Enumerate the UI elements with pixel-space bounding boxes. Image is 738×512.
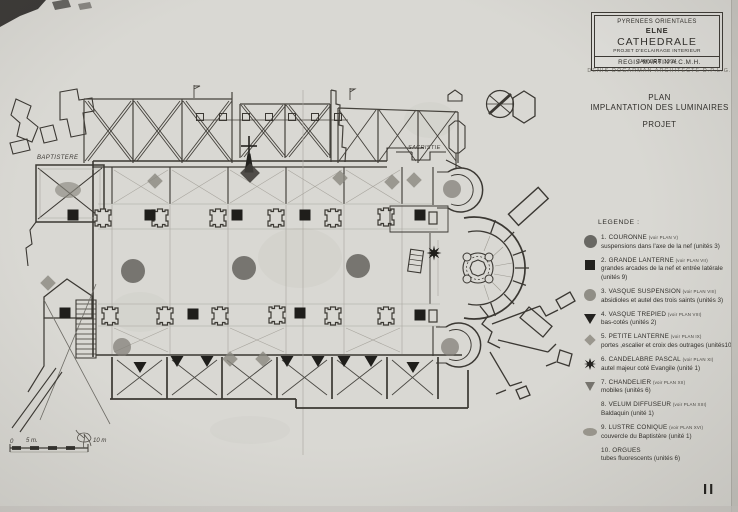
legend-item-plan-ref: (voir PLAN VIII) <box>668 312 702 317</box>
legend-item-plan-ref: (voir PLAN XIII) <box>673 402 707 407</box>
legend-item-plan-ref: (voir PLAN VII) <box>676 258 708 263</box>
marker-couronne <box>121 259 145 283</box>
marker-vasque <box>443 180 461 198</box>
legend-item: 6. CANDELABRE PASCAL (voir PLAN XI) aute… <box>583 356 736 373</box>
legend-item-plan-ref: (voir PLAN XVI) <box>669 425 703 430</box>
photo-right-edge <box>731 0 738 512</box>
legend-item-plan-ref: (voir PLAN IX) <box>671 334 702 339</box>
marker-grande <box>415 210 426 221</box>
baldaquin-altar <box>408 249 493 283</box>
heading-line3: PROJET <box>581 120 738 130</box>
legend-item-desc: tubes fluorescents (unités 6) <box>601 455 734 464</box>
legend-item-desc: Baldaquin (unité 1) <box>601 410 734 419</box>
legend-item-desc: couvercle du Baptistère (unité 1) <box>601 433 734 442</box>
legend-item-desc: suspensions dans l'axe de la nef (unités… <box>601 243 734 252</box>
marker-organ <box>289 114 296 121</box>
compass-rose <box>487 91 514 118</box>
legend-item-desc: bas-cotés (unités 2) <box>601 319 734 328</box>
marker-trepied <box>407 362 420 373</box>
legend-item-desc: portes ,escalier et croix des outrages (… <box>601 342 734 351</box>
legend-item-plan-ref: (voir PLAN XII) <box>653 380 685 385</box>
photo-corner-artifacts <box>0 0 92 27</box>
legend-item-plan-ref: (voir PLAN XI) <box>683 357 714 362</box>
northeast-turret <box>513 91 535 123</box>
marker-trepied <box>312 356 325 367</box>
legend-items: 1. COURONNE (voir PLAN V) suspensions da… <box>583 234 736 464</box>
marker-petite <box>384 174 400 190</box>
absidioles <box>436 168 483 367</box>
legend-item-plan-ref: (voir PLAN VIII) <box>683 289 717 294</box>
legend-item: 9. LUSTRE CONIQUE (voir PLAN XVI) couver… <box>583 424 736 441</box>
legend-item: 4. VASQUE TREPIED (voir PLAN VIII) bas-c… <box>583 311 736 328</box>
marker-trepied <box>201 356 214 367</box>
heading-line2: IMPLANTATION DES LUMINAIRES <box>581 103 738 113</box>
marker-grande <box>60 308 71 319</box>
legend-item-name: 2. GRANDE LANTERNE <box>601 257 674 264</box>
legend-item-plan-ref: (voir PLAN V) <box>649 235 678 240</box>
legend-item-icon <box>585 382 595 391</box>
marker-grande <box>295 308 306 319</box>
photo-bottom-edge <box>0 506 738 512</box>
legend-item-icon <box>584 289 596 301</box>
legend-item-name: 7. CHANDELIER <box>601 379 651 386</box>
sacristie-label: SACRISTIE <box>408 145 441 151</box>
architect-credit-handwritten: DENIS DOGARMAN ARCHITECTE D.P.L.G. <box>581 68 738 74</box>
marker-petite <box>406 172 422 188</box>
legend-item-name: 9. LUSTRE CONIQUE <box>601 424 667 431</box>
scale-bar: 0 5 m. 10 m <box>10 430 106 452</box>
legend-item: 5. PETITE LANTERNE (voir PLAN IX) portes… <box>583 333 736 350</box>
legend-item: 2. GRANDE LANTERNE (voir PLAN VII) grand… <box>583 257 736 283</box>
title-block-top: PYRENEES ORIENTALES ELNE CATHEDRALE PROJ… <box>595 16 719 57</box>
marker-petite <box>255 351 271 367</box>
southwest-annex <box>12 222 110 432</box>
marker-lustre <box>55 182 81 198</box>
marker-vasque <box>113 338 131 356</box>
legend-item: 1. COURONNE (voir PLAN V) suspensions da… <box>583 234 736 251</box>
marker-vasque <box>441 338 459 356</box>
legend-item-icon <box>584 235 597 248</box>
marker-grande <box>188 309 199 320</box>
tree-sketch <box>76 430 91 448</box>
legend-item-desc: grandes arcades de la nef et entrée laté… <box>601 265 734 282</box>
marker-petite-dark <box>240 163 260 183</box>
photographed-plan-sheet: 0 5 m. 10 m BAPTISTERE SACRISTIE PYRENEE… <box>0 0 738 512</box>
marker-trepied <box>134 362 147 373</box>
scale-five-label: 5 m. <box>26 438 38 444</box>
legend-item-icon <box>584 335 595 346</box>
marker-trepied <box>171 356 184 367</box>
legend-item-name: 10. ORGUES <box>601 447 641 454</box>
legend-item-icon <box>584 314 596 324</box>
baptistere-label: BAPTISTERE <box>37 155 79 161</box>
legend-item: 8. VELUM DIFFUSEUR (voir PLAN XIII) Bald… <box>583 401 736 418</box>
legend-item-name: 3. VASQUE SUSPENSION <box>601 288 681 295</box>
legend-item-name: 8. VELUM DIFFUSEUR <box>601 401 671 408</box>
legend-item-name: 5. PETITE LANTERNE <box>601 333 669 340</box>
marker-grande <box>232 210 243 221</box>
scale-zero-label: 0 <box>10 439 14 445</box>
legend-item-icon <box>584 358 596 370</box>
marker-couronne <box>346 254 370 278</box>
architect-credit: REGIS MARTIN A.C.M.H. <box>581 59 738 66</box>
legend-item: 10. ORGUES tubes fluorescents (unités 6) <box>583 447 736 464</box>
scale-ten-label: 10 m <box>93 438 106 444</box>
marker-grande <box>415 310 426 321</box>
credits: REGIS MARTIN A.C.M.H. DENIS DOGARMAN ARC… <box>581 59 738 74</box>
legend-item-desc: absidioles et autel des trois saints (un… <box>601 297 734 306</box>
legend-item-name: 1. COURONNE <box>601 234 647 241</box>
marker-couronne <box>232 256 256 280</box>
marker-petite <box>147 173 163 189</box>
legend-item-desc: autel majeur coté Evangile (unité 1) <box>601 365 734 374</box>
apse-chevet <box>464 217 529 319</box>
legend-item: 3. VASQUE SUSPENSION (voir PLAN VIII) ab… <box>583 288 736 305</box>
sheet-number: II <box>703 481 733 498</box>
marker-pascal <box>427 246 442 261</box>
north-roof-trusses <box>84 85 458 163</box>
heading-line1: PLAN <box>581 93 738 103</box>
marker-organ <box>220 114 227 121</box>
legend-item-icon <box>585 260 595 270</box>
marker-grande <box>145 210 156 221</box>
marker-grande <box>300 210 311 221</box>
legend-title: LEGENDE : <box>598 219 736 226</box>
drawing-heading: PLAN IMPLANTATION DES LUMINAIRES PROJET <box>581 93 738 130</box>
region-label: PYRENEES ORIENTALES <box>597 19 717 25</box>
marker-petite <box>40 275 56 291</box>
project-label: PROJET D'ECLAIRAGE INTERIEUR <box>597 49 717 54</box>
marker-organ <box>312 114 319 121</box>
legend-item-desc: mobiles (unités 6) <box>601 387 734 396</box>
info-panel: PYRENEES ORIENTALES ELNE CATHEDRALE PROJ… <box>581 0 738 512</box>
legend-item-icon <box>583 428 597 436</box>
marker-grande <box>68 210 79 221</box>
marker-petite <box>222 351 238 367</box>
city-label: ELNE <box>597 26 717 35</box>
building-label: CATHEDRALE <box>597 36 717 48</box>
northwest-ruins <box>10 89 94 154</box>
legend-item-name: 6. CANDELABRE PASCAL <box>601 356 681 363</box>
legend: LEGENDE : 1. COURONNE (voir PLAN V) susp… <box>583 219 736 469</box>
legend-item-name: 4. VASQUE TREPIED <box>601 311 666 318</box>
legend-item: 7. CHANDELIER (voir PLAN XII) mobiles (u… <box>583 379 736 396</box>
marker-petite <box>332 170 348 186</box>
marker-trepied <box>281 356 294 367</box>
